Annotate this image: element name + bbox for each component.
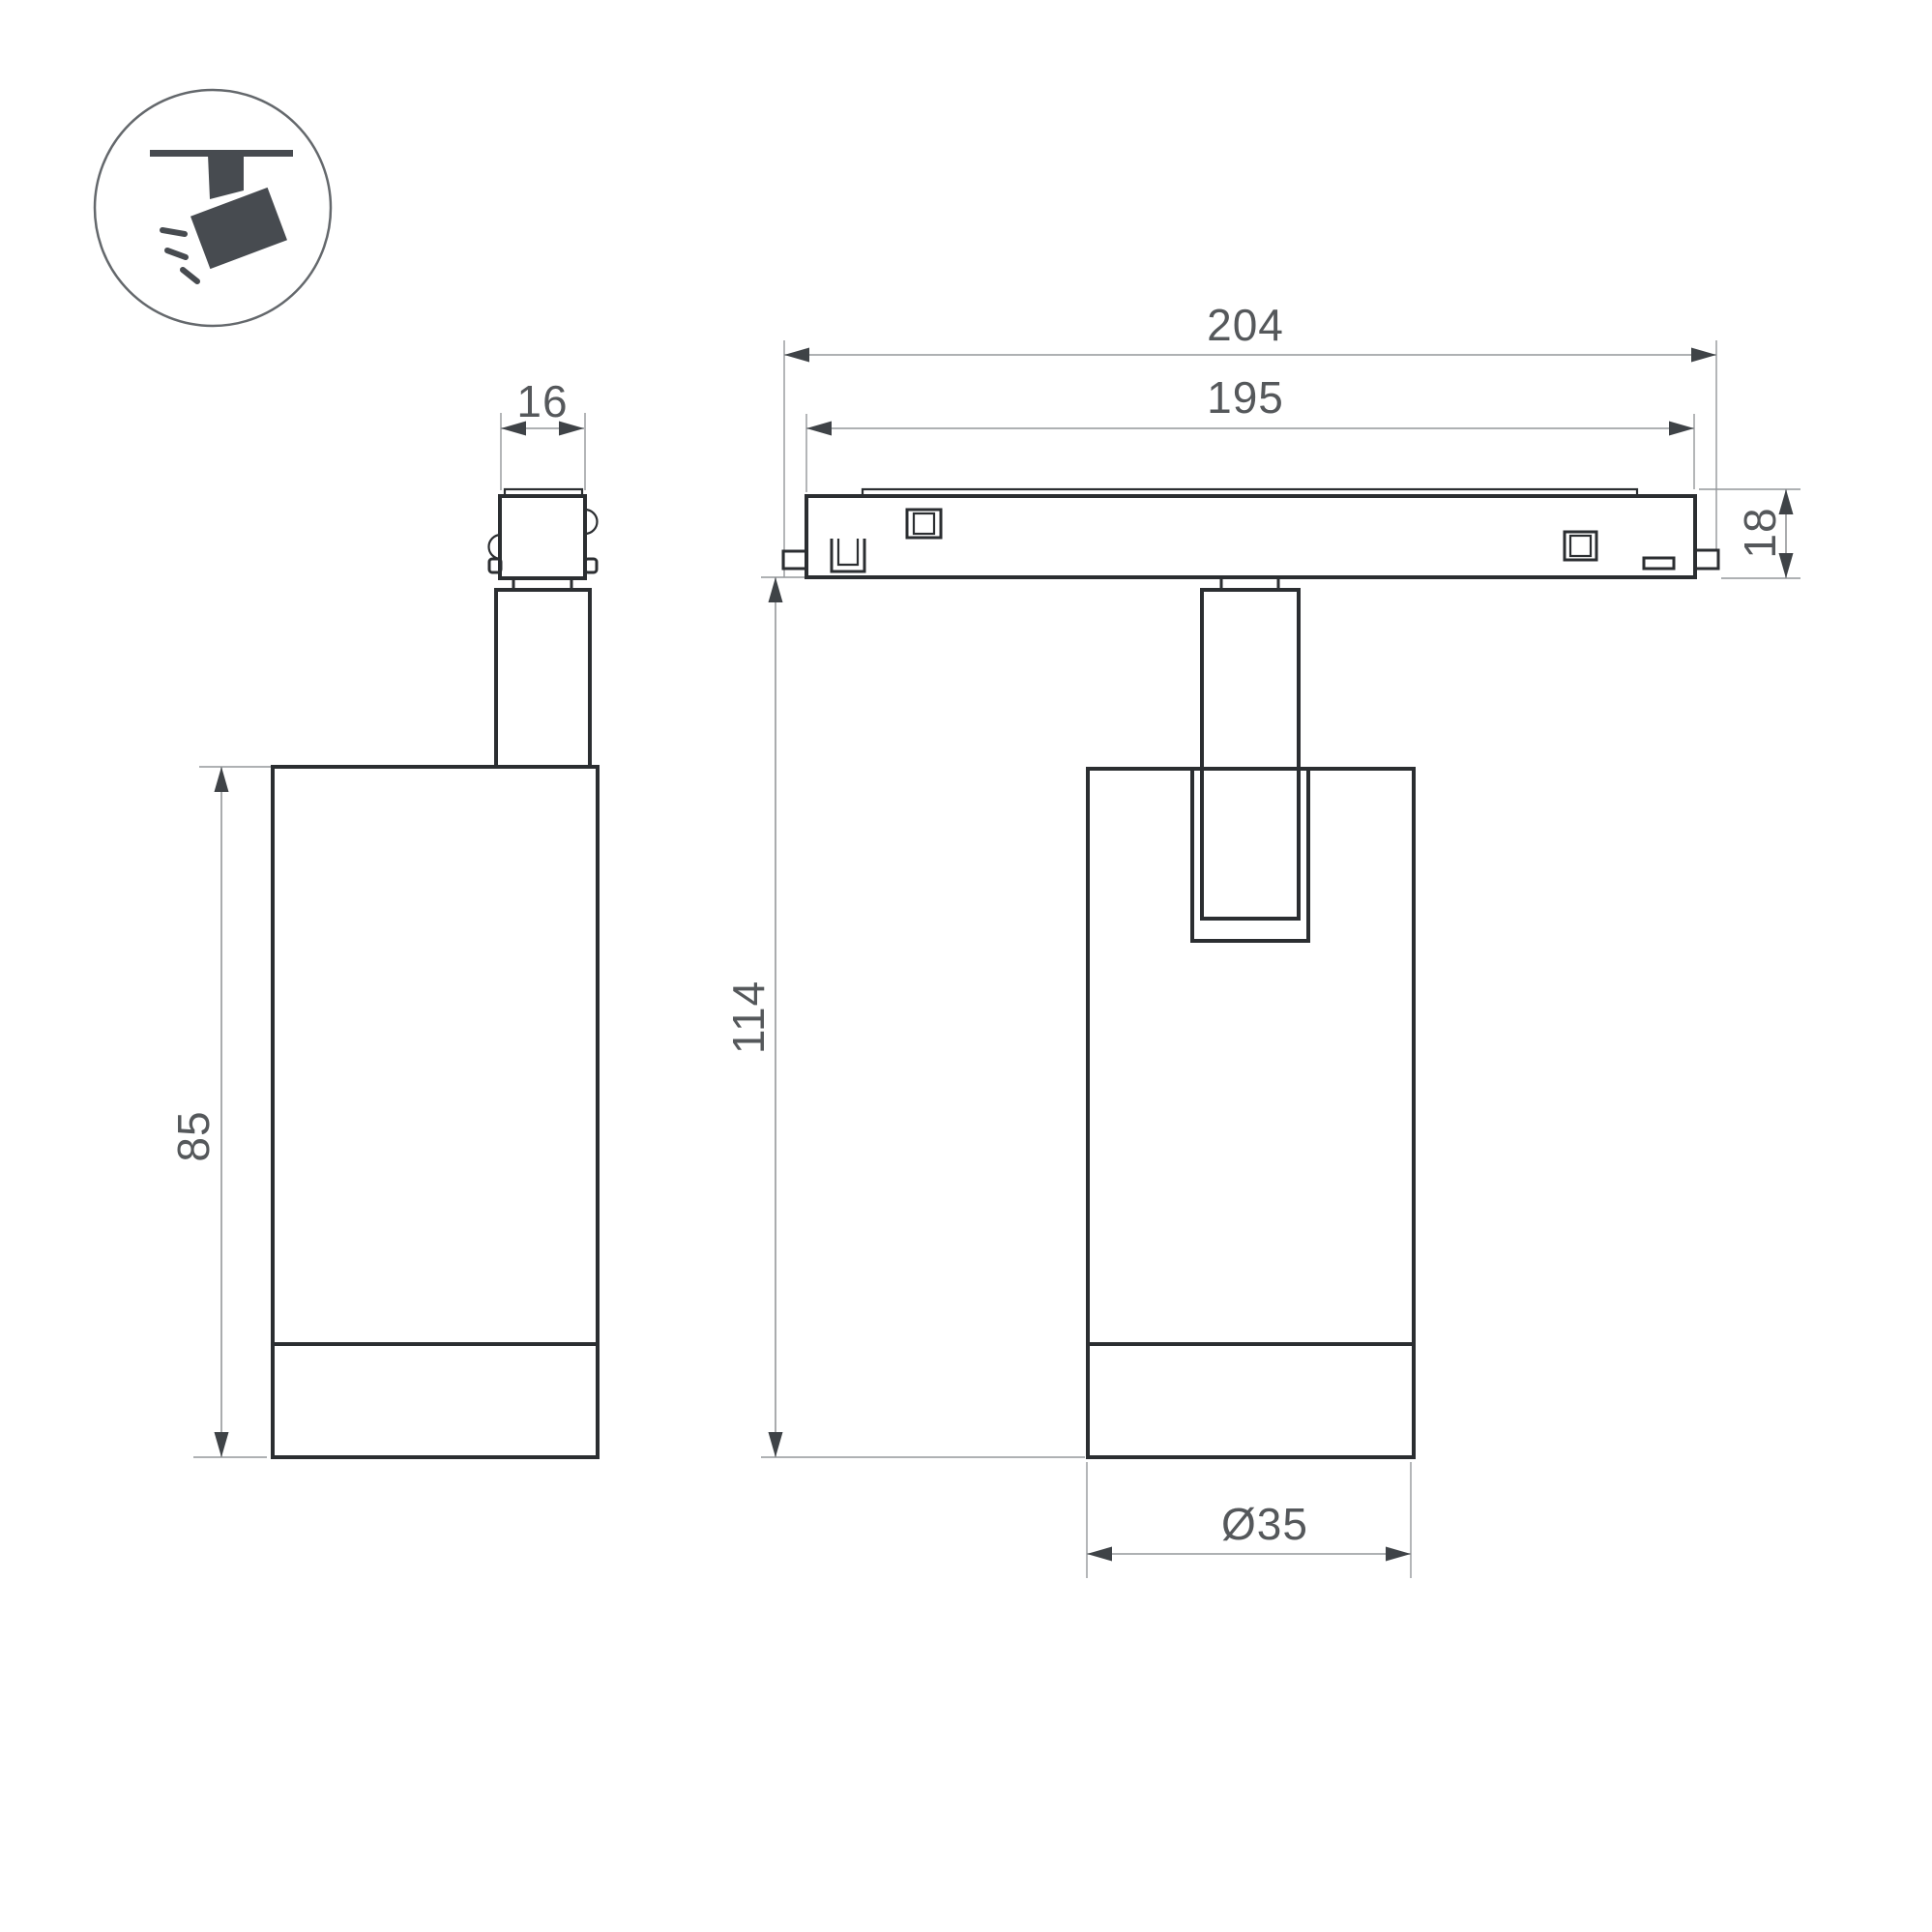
stem: [1202, 590, 1299, 919]
icon-light-ray: [167, 250, 186, 257]
stem: [496, 590, 590, 767]
icon-circle-border: [95, 90, 331, 326]
icon-mount-stem: [208, 155, 244, 199]
dim-track-height-label: 18: [1735, 507, 1785, 558]
dim-adapter-width-label: 16: [516, 376, 568, 426]
dimension-drawing: 16 85 204: [0, 0, 1932, 1932]
dim-body-diameter-label: Ø35: [1221, 1499, 1308, 1549]
front-view: 204 195 18: [723, 300, 1800, 1578]
track-contact-strip: [1644, 558, 1674, 569]
dim-track-inner-length-label: 195: [1207, 372, 1284, 423]
track-end-tab-left: [783, 551, 806, 569]
body-slot: [1192, 770, 1308, 941]
adapter-block: [500, 496, 585, 578]
drawing-canvas: 16 85 204: [0, 0, 1932, 1932]
track-spotlight-icon: [95, 90, 331, 326]
dim-track-outer-length-label: 204: [1207, 300, 1284, 350]
dim-track-inner-length: 195: [806, 372, 1694, 492]
lamp-body: [273, 767, 598, 1457]
dim-overall-height-label: 114: [723, 981, 774, 1054]
track-contact-block-inner: [914, 513, 934, 534]
track-contact-block-inner: [1570, 536, 1591, 556]
dim-body-height-label: 85: [168, 1110, 219, 1161]
lamp-body: [1088, 769, 1414, 1457]
dim-adapter-width: 16: [501, 376, 585, 490]
dim-overall-height: 114: [723, 577, 1085, 1457]
dim-track-height: 18: [1699, 489, 1800, 578]
track-end-tab-right: [1695, 550, 1718, 569]
track-contact-clip: [832, 539, 864, 571]
icon-light-ray: [183, 270, 197, 281]
dim-body-height: 85: [168, 767, 271, 1457]
icon-light-ray: [162, 230, 185, 234]
dim-body-diameter: Ø35: [1087, 1462, 1411, 1578]
track-contact-clip-inner: [838, 539, 858, 565]
icon-lamp-head: [190, 188, 287, 269]
side-view: 16 85: [168, 376, 598, 1457]
